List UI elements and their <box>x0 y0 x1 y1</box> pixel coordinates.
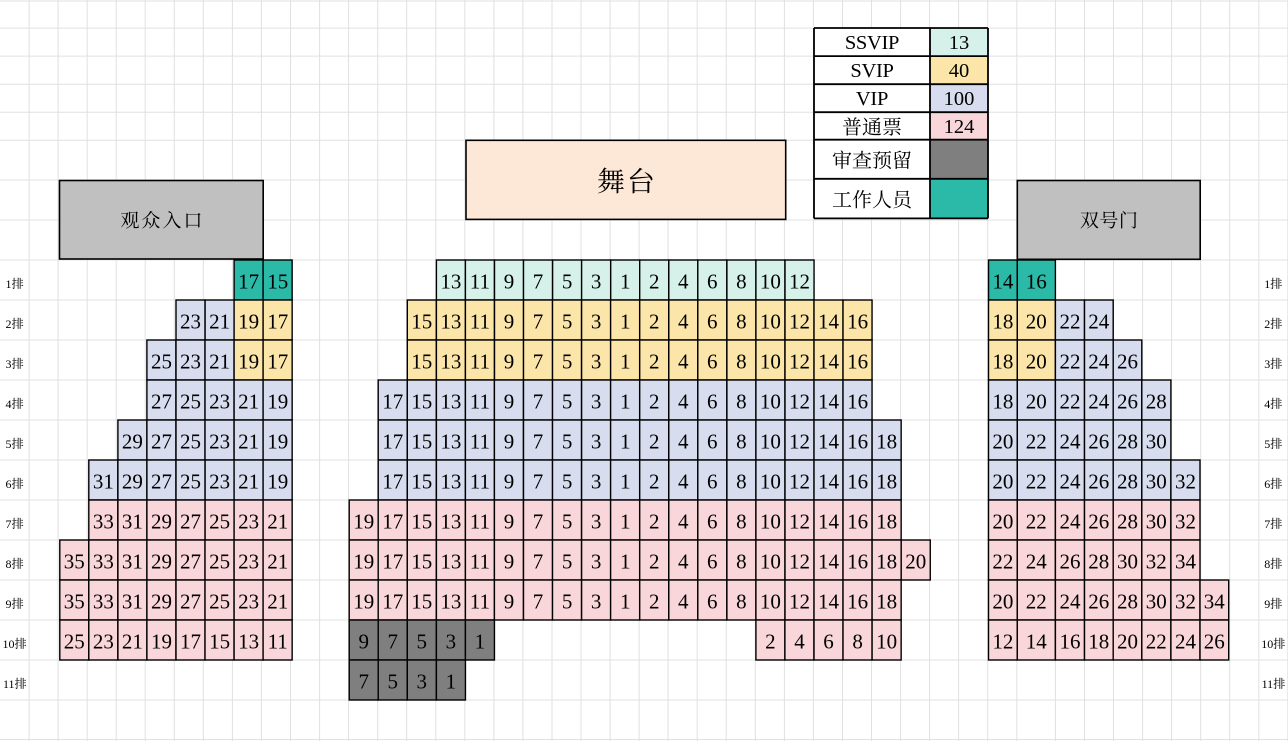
svg-text:7: 7 <box>533 550 544 574</box>
svg-text:28: 28 <box>1117 510 1138 534</box>
svg-text:35: 35 <box>64 590 85 614</box>
svg-text:7: 7 <box>533 510 544 534</box>
svg-text:12: 12 <box>789 350 810 374</box>
svg-text:17: 17 <box>382 470 403 494</box>
svg-text:2: 2 <box>6 317 12 331</box>
svg-text:24: 24 <box>1088 350 1110 374</box>
svg-text:2: 2 <box>1264 317 1270 331</box>
svg-text:32: 32 <box>1146 550 1167 574</box>
svg-text:4: 4 <box>678 350 689 374</box>
svg-text:24: 24 <box>1088 310 1110 334</box>
svg-text:30: 30 <box>1146 470 1167 494</box>
svg-text:5: 5 <box>562 310 573 334</box>
svg-text:4: 4 <box>678 590 689 614</box>
svg-text:3: 3 <box>591 350 602 374</box>
svg-text:5: 5 <box>562 470 573 494</box>
svg-text:21: 21 <box>238 470 259 494</box>
svg-text:22: 22 <box>1026 430 1047 454</box>
svg-text:18: 18 <box>876 470 897 494</box>
svg-text:5: 5 <box>6 437 12 451</box>
svg-text:2: 2 <box>649 390 660 414</box>
svg-text:3: 3 <box>591 310 602 334</box>
svg-text:9: 9 <box>504 550 515 574</box>
svg-text:11: 11 <box>470 470 490 494</box>
svg-text:14: 14 <box>818 390 840 414</box>
svg-text:19: 19 <box>353 590 374 614</box>
svg-text:8: 8 <box>736 390 747 414</box>
svg-text:10: 10 <box>876 630 897 654</box>
svg-text:3: 3 <box>591 430 602 454</box>
svg-text:15: 15 <box>411 590 432 614</box>
svg-text:40: 40 <box>949 60 970 82</box>
svg-text:19: 19 <box>238 350 259 374</box>
svg-text:25: 25 <box>180 430 201 454</box>
svg-text:3: 3 <box>591 590 602 614</box>
svg-text:4: 4 <box>678 550 689 574</box>
svg-text:12: 12 <box>789 270 810 294</box>
svg-text:14: 14 <box>818 310 840 334</box>
svg-text:31: 31 <box>93 470 114 494</box>
svg-text:15: 15 <box>267 270 288 294</box>
svg-text:6: 6 <box>707 270 718 294</box>
svg-text:25: 25 <box>180 470 201 494</box>
svg-text:26: 26 <box>1088 430 1109 454</box>
svg-text:28: 28 <box>1146 390 1167 414</box>
svg-text:9: 9 <box>358 630 369 654</box>
svg-text:24: 24 <box>1175 630 1197 654</box>
svg-text:9: 9 <box>504 270 515 294</box>
svg-text:23: 23 <box>209 390 230 414</box>
svg-text:5: 5 <box>562 390 573 414</box>
svg-text:27: 27 <box>151 470 172 494</box>
svg-text:1: 1 <box>475 630 486 654</box>
svg-text:10: 10 <box>760 550 781 574</box>
svg-text:20: 20 <box>992 430 1013 454</box>
svg-text:4: 4 <box>6 397 12 411</box>
svg-text:21: 21 <box>122 630 143 654</box>
svg-text:22: 22 <box>1146 630 1167 654</box>
svg-text:9: 9 <box>1264 597 1270 611</box>
svg-text:4: 4 <box>678 470 689 494</box>
svg-text:30: 30 <box>1146 430 1167 454</box>
svg-text:9: 9 <box>6 597 12 611</box>
svg-text:14: 14 <box>1026 630 1048 654</box>
svg-text:6: 6 <box>707 470 718 494</box>
svg-text:8: 8 <box>736 270 747 294</box>
svg-text:VIP: VIP <box>856 88 888 110</box>
svg-text:13: 13 <box>440 350 461 374</box>
svg-text:25: 25 <box>151 350 172 374</box>
svg-text:6: 6 <box>707 550 718 574</box>
svg-text:21: 21 <box>267 510 288 534</box>
svg-text:17: 17 <box>180 630 201 654</box>
svg-text:4: 4 <box>1264 397 1270 411</box>
svg-text:18: 18 <box>1088 630 1109 654</box>
svg-text:7: 7 <box>533 470 544 494</box>
svg-text:5: 5 <box>562 510 573 534</box>
svg-text:4: 4 <box>678 430 689 454</box>
svg-text:28: 28 <box>1117 470 1138 494</box>
svg-text:12: 12 <box>992 630 1013 654</box>
svg-text:5: 5 <box>1264 437 1270 451</box>
svg-text:27: 27 <box>180 550 201 574</box>
svg-text:11: 11 <box>470 350 490 374</box>
svg-text:22: 22 <box>1026 590 1047 614</box>
svg-text:18: 18 <box>876 550 897 574</box>
svg-text:10: 10 <box>760 390 781 414</box>
svg-text:28: 28 <box>1117 430 1138 454</box>
svg-text:1: 1 <box>620 390 631 414</box>
svg-text:29: 29 <box>151 550 172 574</box>
svg-text:2: 2 <box>649 470 660 494</box>
svg-text:6: 6 <box>707 310 718 334</box>
svg-text:6: 6 <box>707 390 718 414</box>
svg-text:2: 2 <box>649 510 660 534</box>
svg-text:30: 30 <box>1117 550 1138 574</box>
svg-text:100: 100 <box>944 88 975 110</box>
svg-text:5: 5 <box>562 270 573 294</box>
svg-text:12: 12 <box>789 550 810 574</box>
svg-text:19: 19 <box>353 550 374 574</box>
svg-text:18: 18 <box>876 590 897 614</box>
svg-text:17: 17 <box>382 550 403 574</box>
svg-text:1: 1 <box>620 510 631 534</box>
svg-text:20: 20 <box>905 550 926 574</box>
svg-text:21: 21 <box>238 430 259 454</box>
svg-text:34: 34 <box>1175 550 1197 574</box>
svg-text:4: 4 <box>678 390 689 414</box>
svg-text:19: 19 <box>267 430 288 454</box>
svg-text:7: 7 <box>388 630 399 654</box>
svg-text:15: 15 <box>411 430 432 454</box>
svg-text:22: 22 <box>1060 310 1081 334</box>
svg-text:4: 4 <box>678 310 689 334</box>
svg-text:8: 8 <box>736 550 747 574</box>
svg-text:6: 6 <box>1264 477 1270 491</box>
svg-text:3: 3 <box>1264 357 1270 371</box>
svg-text:30: 30 <box>1146 510 1167 534</box>
svg-text:10: 10 <box>760 590 781 614</box>
svg-text:1: 1 <box>620 270 631 294</box>
svg-text:32: 32 <box>1175 510 1196 534</box>
svg-text:26: 26 <box>1204 630 1225 654</box>
svg-text:29: 29 <box>122 470 143 494</box>
svg-text:11: 11 <box>1262 677 1274 691</box>
svg-text:31: 31 <box>122 510 143 534</box>
svg-text:3: 3 <box>417 670 428 694</box>
svg-text:2: 2 <box>649 350 660 374</box>
svg-text:5: 5 <box>562 550 573 574</box>
svg-text:27: 27 <box>151 430 172 454</box>
svg-text:13: 13 <box>440 550 461 574</box>
svg-text:10: 10 <box>3 637 15 651</box>
svg-text:20: 20 <box>1026 350 1047 374</box>
svg-text:8: 8 <box>6 557 12 571</box>
svg-text:7: 7 <box>533 590 544 614</box>
svg-text:21: 21 <box>238 390 259 414</box>
svg-text:6: 6 <box>823 630 834 654</box>
svg-text:10: 10 <box>760 470 781 494</box>
svg-text:4: 4 <box>794 630 805 654</box>
svg-text:18: 18 <box>992 310 1013 334</box>
svg-text:23: 23 <box>180 310 201 334</box>
svg-text:10: 10 <box>1261 637 1273 651</box>
svg-text:3: 3 <box>591 390 602 414</box>
svg-text:7: 7 <box>533 310 544 334</box>
svg-text:6: 6 <box>707 590 718 614</box>
svg-text:12: 12 <box>789 390 810 414</box>
svg-text:13: 13 <box>440 270 461 294</box>
svg-text:24: 24 <box>1060 510 1082 534</box>
svg-text:29: 29 <box>151 510 172 534</box>
svg-text:15: 15 <box>209 630 230 654</box>
svg-text:5: 5 <box>388 670 399 694</box>
svg-text:26: 26 <box>1117 350 1138 374</box>
svg-text:21: 21 <box>209 350 230 374</box>
svg-text:14: 14 <box>818 430 840 454</box>
svg-text:9: 9 <box>504 430 515 454</box>
svg-text:7: 7 <box>533 350 544 374</box>
svg-text:23: 23 <box>209 430 230 454</box>
svg-text:29: 29 <box>151 590 172 614</box>
svg-text:27: 27 <box>151 390 172 414</box>
svg-text:25: 25 <box>180 390 201 414</box>
svg-text:28: 28 <box>1088 550 1109 574</box>
svg-text:22: 22 <box>1060 350 1081 374</box>
svg-text:9: 9 <box>504 510 515 534</box>
svg-text:5: 5 <box>562 430 573 454</box>
svg-text:26: 26 <box>1088 590 1109 614</box>
svg-text:16: 16 <box>847 310 868 334</box>
svg-text:5: 5 <box>562 350 573 374</box>
svg-text:21: 21 <box>209 310 230 334</box>
svg-text:15: 15 <box>411 550 432 574</box>
svg-text:19: 19 <box>267 470 288 494</box>
svg-text:13: 13 <box>440 310 461 334</box>
svg-text:20: 20 <box>992 470 1013 494</box>
svg-text:16: 16 <box>847 590 868 614</box>
svg-text:17: 17 <box>267 310 288 334</box>
svg-text:20: 20 <box>1026 390 1047 414</box>
svg-text:18: 18 <box>876 430 897 454</box>
svg-text:1: 1 <box>620 430 631 454</box>
svg-text:8: 8 <box>736 470 747 494</box>
svg-text:124: 124 <box>944 116 975 138</box>
svg-text:9: 9 <box>504 350 515 374</box>
svg-text:9: 9 <box>504 390 515 414</box>
svg-text:19: 19 <box>353 510 374 534</box>
svg-text:1: 1 <box>620 470 631 494</box>
svg-text:18: 18 <box>992 390 1013 414</box>
svg-text:14: 14 <box>818 350 840 374</box>
svg-text:13: 13 <box>440 590 461 614</box>
svg-text:17: 17 <box>382 390 403 414</box>
svg-text:24: 24 <box>1026 550 1048 574</box>
svg-text:6: 6 <box>6 477 12 491</box>
svg-text:13: 13 <box>949 32 970 54</box>
svg-text:7: 7 <box>533 270 544 294</box>
svg-text:2: 2 <box>765 630 776 654</box>
svg-text:26: 26 <box>1088 470 1109 494</box>
svg-text:16: 16 <box>847 390 868 414</box>
svg-text:32: 32 <box>1175 590 1196 614</box>
svg-text:14: 14 <box>818 510 840 534</box>
svg-text:25: 25 <box>209 510 230 534</box>
svg-text:34: 34 <box>1204 590 1226 614</box>
svg-text:2: 2 <box>649 270 660 294</box>
svg-text:25: 25 <box>209 590 230 614</box>
svg-text:1: 1 <box>620 350 631 374</box>
svg-text:14: 14 <box>992 270 1014 294</box>
svg-text:27: 27 <box>180 590 201 614</box>
svg-text:23: 23 <box>238 510 259 534</box>
svg-text:11: 11 <box>470 270 490 294</box>
svg-text:31: 31 <box>122 550 143 574</box>
svg-text:17: 17 <box>382 430 403 454</box>
svg-text:20: 20 <box>1117 630 1138 654</box>
svg-text:13: 13 <box>440 510 461 534</box>
svg-text:11: 11 <box>470 430 490 454</box>
svg-text:17: 17 <box>382 590 403 614</box>
svg-text:13: 13 <box>238 630 259 654</box>
svg-text:24: 24 <box>1088 390 1110 414</box>
svg-text:11: 11 <box>268 630 288 654</box>
svg-text:16: 16 <box>1060 630 1081 654</box>
svg-text:3: 3 <box>591 550 602 574</box>
svg-text:7: 7 <box>533 430 544 454</box>
svg-text:25: 25 <box>64 630 85 654</box>
svg-text:14: 14 <box>818 550 840 574</box>
svg-text:18: 18 <box>876 510 897 534</box>
svg-text:15: 15 <box>411 510 432 534</box>
svg-text:31: 31 <box>122 590 143 614</box>
svg-text:26: 26 <box>1060 550 1081 574</box>
svg-text:23: 23 <box>238 590 259 614</box>
svg-text:16: 16 <box>847 350 868 374</box>
svg-text:8: 8 <box>736 510 747 534</box>
svg-text:10: 10 <box>760 350 781 374</box>
svg-text:27: 27 <box>180 510 201 534</box>
svg-text:23: 23 <box>238 550 259 574</box>
svg-text:12: 12 <box>789 430 810 454</box>
svg-text:2: 2 <box>649 590 660 614</box>
svg-text:24: 24 <box>1060 470 1082 494</box>
svg-text:5: 5 <box>417 630 428 654</box>
svg-text:19: 19 <box>267 390 288 414</box>
svg-text:11: 11 <box>3 677 15 691</box>
svg-text:24: 24 <box>1060 590 1082 614</box>
svg-text:3: 3 <box>6 357 12 371</box>
svg-text:2: 2 <box>649 550 660 574</box>
svg-text:22: 22 <box>1060 390 1081 414</box>
svg-text:14: 14 <box>818 470 840 494</box>
svg-text:7: 7 <box>358 670 369 694</box>
svg-text:22: 22 <box>1026 470 1047 494</box>
svg-text:6: 6 <box>707 430 718 454</box>
svg-text:10: 10 <box>760 270 781 294</box>
svg-text:30: 30 <box>1146 590 1167 614</box>
svg-text:11: 11 <box>470 550 490 574</box>
svg-text:6: 6 <box>707 510 718 534</box>
svg-text:12: 12 <box>789 590 810 614</box>
svg-text:9: 9 <box>504 470 515 494</box>
svg-text:16: 16 <box>847 510 868 534</box>
svg-text:28: 28 <box>1117 590 1138 614</box>
svg-text:11: 11 <box>470 510 490 534</box>
svg-text:13: 13 <box>440 430 461 454</box>
svg-text:12: 12 <box>789 510 810 534</box>
svg-text:9: 9 <box>504 590 515 614</box>
svg-text:23: 23 <box>93 630 114 654</box>
svg-text:1: 1 <box>6 277 12 291</box>
svg-text:2: 2 <box>649 310 660 334</box>
svg-text:8: 8 <box>736 350 747 374</box>
svg-text:7: 7 <box>1264 517 1270 531</box>
svg-text:3: 3 <box>446 630 457 654</box>
svg-text:17: 17 <box>267 350 288 374</box>
svg-text:4: 4 <box>678 270 689 294</box>
svg-text:10: 10 <box>760 430 781 454</box>
svg-text:14: 14 <box>818 590 840 614</box>
svg-text:19: 19 <box>238 310 259 334</box>
svg-text:26: 26 <box>1117 390 1138 414</box>
svg-text:35: 35 <box>64 550 85 574</box>
svg-text:11: 11 <box>470 390 490 414</box>
svg-text:24: 24 <box>1060 430 1082 454</box>
svg-text:20: 20 <box>1026 310 1047 334</box>
svg-text:20: 20 <box>992 510 1013 534</box>
svg-text:21: 21 <box>267 550 288 574</box>
svg-text:18: 18 <box>992 350 1013 374</box>
svg-text:1: 1 <box>620 590 631 614</box>
svg-text:33: 33 <box>93 590 114 614</box>
svg-text:17: 17 <box>238 270 259 294</box>
svg-text:5: 5 <box>562 590 573 614</box>
svg-text:8: 8 <box>736 310 747 334</box>
svg-text:16: 16 <box>847 550 868 574</box>
svg-text:3: 3 <box>591 270 602 294</box>
svg-text:17: 17 <box>382 510 403 534</box>
svg-text:15: 15 <box>411 470 432 494</box>
svg-text:20: 20 <box>992 590 1013 614</box>
svg-text:12: 12 <box>789 470 810 494</box>
svg-text:8: 8 <box>1264 557 1270 571</box>
svg-text:SVIP: SVIP <box>850 60 893 82</box>
svg-text:1: 1 <box>446 670 457 694</box>
svg-text:21: 21 <box>267 590 288 614</box>
svg-text:16: 16 <box>847 430 868 454</box>
svg-text:8: 8 <box>736 430 747 454</box>
svg-text:8: 8 <box>852 630 863 654</box>
svg-text:8: 8 <box>736 590 747 614</box>
svg-text:11: 11 <box>470 310 490 334</box>
svg-text:6: 6 <box>707 350 718 374</box>
svg-text:32: 32 <box>1175 470 1196 494</box>
svg-text:16: 16 <box>847 470 868 494</box>
svg-text:23: 23 <box>209 470 230 494</box>
svg-text:13: 13 <box>440 470 461 494</box>
svg-text:15: 15 <box>411 350 432 374</box>
svg-text:11: 11 <box>470 590 490 614</box>
svg-text:10: 10 <box>760 310 781 334</box>
svg-text:1: 1 <box>620 310 631 334</box>
svg-text:10: 10 <box>760 510 781 534</box>
svg-text:29: 29 <box>122 430 143 454</box>
svg-text:33: 33 <box>93 510 114 534</box>
svg-text:22: 22 <box>1026 510 1047 534</box>
svg-text:3: 3 <box>591 510 602 534</box>
svg-text:23: 23 <box>180 350 201 374</box>
